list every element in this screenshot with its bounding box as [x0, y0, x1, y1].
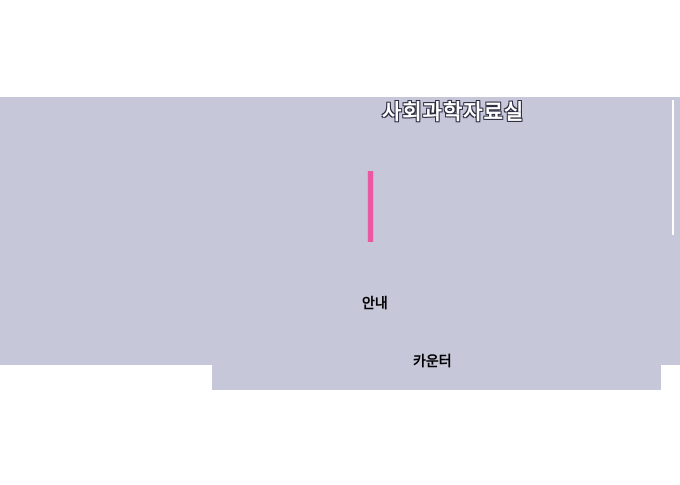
map-label-counter: 카운터 [413, 351, 452, 371]
content-panel [0, 97, 680, 365]
map-label-guide: 안내 [362, 293, 388, 313]
right-divider-line [672, 100, 674, 235]
room-title: 사회과학자료실 [382, 96, 524, 126]
page-canvas: 사회과학자료실 안내 카운터 [0, 0, 680, 485]
location-highlight-bar [367, 171, 374, 242]
